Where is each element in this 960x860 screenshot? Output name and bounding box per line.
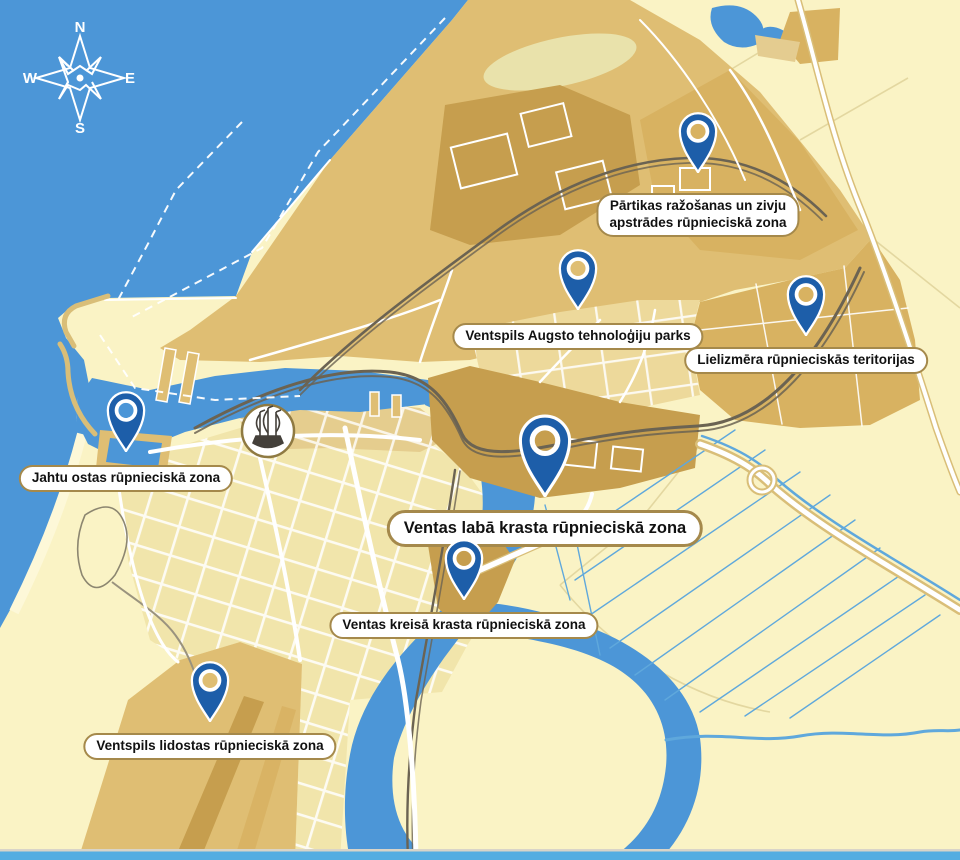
bottom-hairline [0,849,960,852]
zone-label: Ventas labā krasta rūpnieciskā zona [387,510,703,547]
pin-icon[interactable] [783,274,829,336]
zone-label: Jahtu ostas rūpnieciskā zona [19,465,233,492]
compass-n: N [75,19,86,36]
zone-label-line: apstrādes rūpnieciskā zona [609,215,786,232]
zone-label: Ventas kreisā krasta rūpnieciskā zona [329,612,598,639]
pin-icon[interactable] [514,413,576,497]
zone-label: Pārtikas ražošanas un zivju apstrādes rū… [596,193,799,237]
pin-icon[interactable] [441,538,487,600]
zone-label: Lielizmēra rūpnieciskās teritorijas [684,347,928,374]
pin-icon[interactable] [675,111,721,173]
zone-label: Ventspils Augsto tehnoloģiju parks [452,323,703,350]
compass-w: W [23,70,38,87]
ventspils-industrial-zones-map: N E S W Pārtikas ražošanas un zivju apst… [0,0,960,860]
pin-icon[interactable] [555,248,601,310]
pin-icon[interactable] [103,390,149,452]
bottom-border-bar [0,852,960,860]
compass-e: E [125,70,135,87]
zone-label-line: Pārtikas ražošanas un zivju [609,198,786,215]
pin-icon[interactable] [187,660,233,722]
compass-s: S [75,120,85,137]
sailing-ship-emblem [242,405,294,457]
zone-label: Ventspils lidostas rūpnieciskā zona [83,733,336,760]
